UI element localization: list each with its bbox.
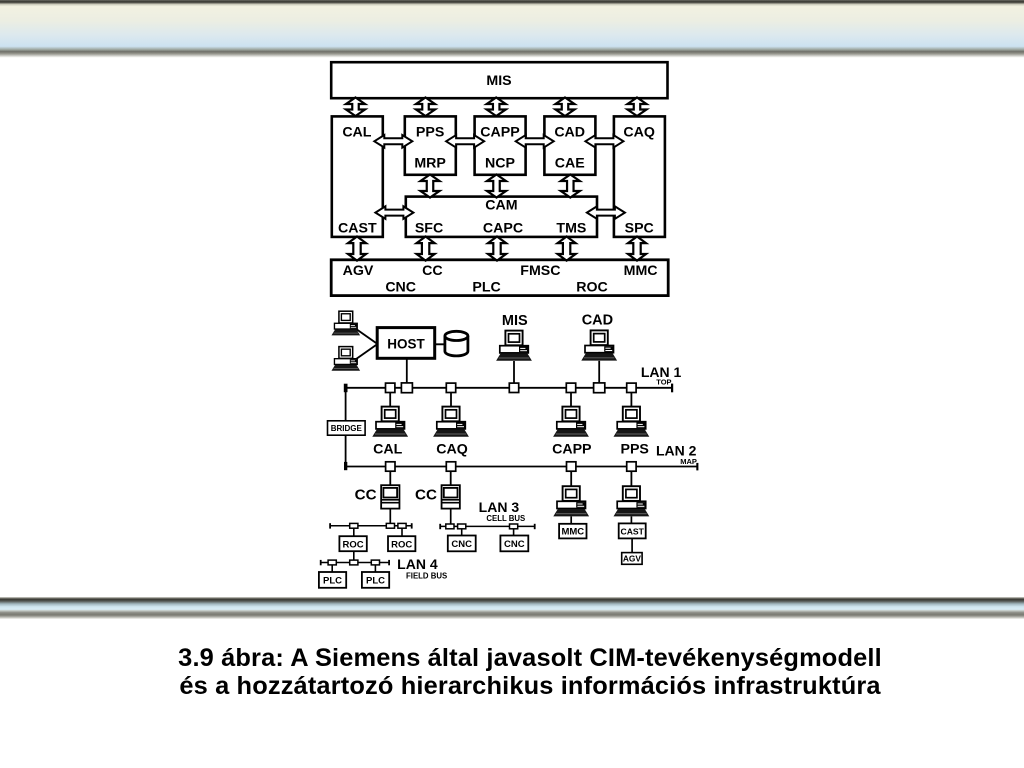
svg-text:ROC: ROC <box>343 539 364 550</box>
svg-text:MIS: MIS <box>502 313 528 329</box>
svg-text:ROC: ROC <box>391 539 412 550</box>
svg-text:CAL: CAL <box>373 442 402 458</box>
svg-text:MMC: MMC <box>624 263 658 279</box>
svg-text:AGV: AGV <box>343 263 374 279</box>
svg-text:PPS: PPS <box>621 442 649 458</box>
svg-text:LAN 3: LAN 3 <box>479 499 520 515</box>
svg-text:PPS: PPS <box>416 124 444 140</box>
svg-text:FMSC: FMSC <box>520 263 560 279</box>
svg-text:CC: CC <box>422 263 443 279</box>
svg-text:CNC: CNC <box>504 539 525 550</box>
svg-text:HOST: HOST <box>387 337 425 352</box>
svg-text:CAPP: CAPP <box>480 124 519 140</box>
svg-text:CELL BUS: CELL BUS <box>486 514 525 523</box>
svg-text:PLC: PLC <box>472 280 500 296</box>
svg-text:CNC: CNC <box>385 280 416 296</box>
svg-text:CNC: CNC <box>451 539 472 550</box>
svg-text:NCP: NCP <box>485 156 515 172</box>
svg-text:CAQ: CAQ <box>623 124 655 140</box>
svg-text:CAD: CAD <box>554 124 585 140</box>
svg-text:BRIDGE: BRIDGE <box>331 424 363 433</box>
svg-text:TOP: TOP <box>656 378 671 387</box>
svg-text:CAD: CAD <box>582 313 613 329</box>
svg-text:ROC: ROC <box>576 280 608 296</box>
svg-text:CC: CC <box>355 486 377 503</box>
svg-text:LAN 4: LAN 4 <box>397 556 438 572</box>
svg-text:SFC: SFC <box>415 220 443 236</box>
svg-text:CAE: CAE <box>555 156 585 172</box>
svg-text:CAL: CAL <box>342 124 371 140</box>
svg-text:FIELD BUS: FIELD BUS <box>406 571 447 580</box>
svg-text:CAST: CAST <box>620 526 644 536</box>
svg-text:CAPC: CAPC <box>483 220 523 236</box>
svg-text:CAPP: CAPP <box>552 442 591 458</box>
svg-text:AGV: AGV <box>623 553 642 563</box>
svg-text:TMS: TMS <box>556 220 586 236</box>
svg-text:CAM: CAM <box>485 197 517 213</box>
svg-text:CAST: CAST <box>338 220 377 236</box>
svg-text:CAQ: CAQ <box>436 442 468 458</box>
svg-text:MMC: MMC <box>561 527 584 538</box>
svg-text:MAP: MAP <box>680 457 697 466</box>
svg-text:CC: CC <box>415 486 437 503</box>
svg-text:PLC: PLC <box>366 576 385 587</box>
svg-text:SPC: SPC <box>625 220 654 236</box>
svg-text:MIS: MIS <box>486 73 511 89</box>
svg-text:MRP: MRP <box>414 156 446 172</box>
svg-text:PLC: PLC <box>323 576 342 587</box>
